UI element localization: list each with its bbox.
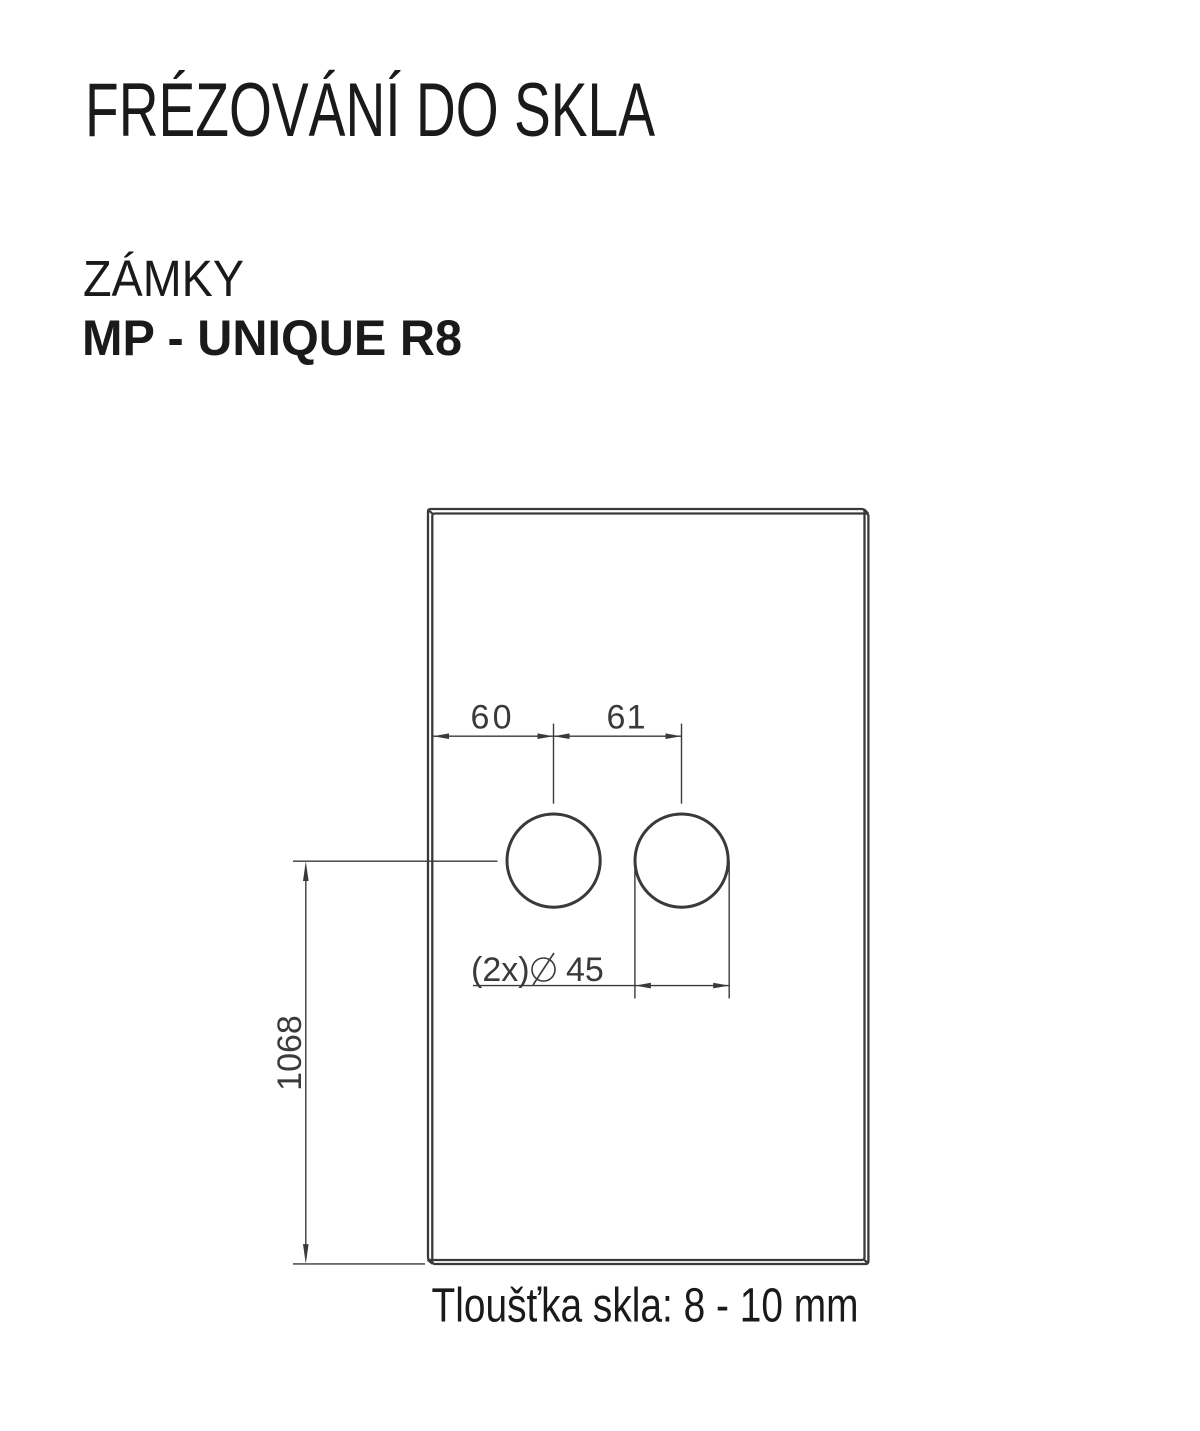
- svg-text:Tloušťka skla: 8 - 10 mm: Tloušťka skla: 8 - 10 mm: [432, 1280, 859, 1333]
- svg-text:60: 60: [471, 699, 512, 737]
- svg-text:(2x): (2x): [471, 951, 530, 989]
- svg-text:45: 45: [566, 951, 604, 989]
- svg-text:61: 61: [607, 699, 646, 737]
- svg-text:ZÁMKY: ZÁMKY: [83, 250, 244, 307]
- svg-text:FRÉZOVÁNÍ DO SKLA: FRÉZOVÁNÍ DO SKLA: [85, 68, 655, 153]
- svg-text:MP - UNIQUE R8: MP - UNIQUE R8: [82, 310, 462, 366]
- svg-text:1068: 1068: [271, 1015, 309, 1091]
